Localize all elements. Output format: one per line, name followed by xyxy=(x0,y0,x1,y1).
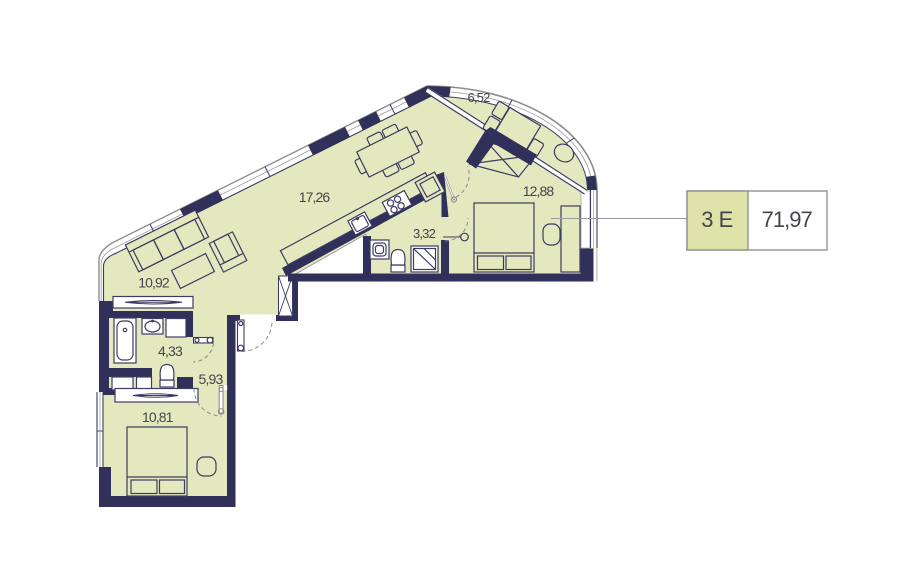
svg-text:4,33: 4,33 xyxy=(158,343,183,359)
svg-text:17,26: 17,26 xyxy=(299,189,331,205)
svg-text:3 Е: 3 Е xyxy=(701,207,733,232)
svg-text:71,97: 71,97 xyxy=(762,207,813,232)
svg-text:10,92: 10,92 xyxy=(138,275,170,291)
svg-text:10,81: 10,81 xyxy=(142,409,174,425)
svg-text:3,32: 3,32 xyxy=(413,226,436,241)
svg-text:5,93: 5,93 xyxy=(198,371,223,387)
svg-text:6,52: 6,52 xyxy=(467,90,490,105)
svg-text:12,88: 12,88 xyxy=(523,183,555,199)
